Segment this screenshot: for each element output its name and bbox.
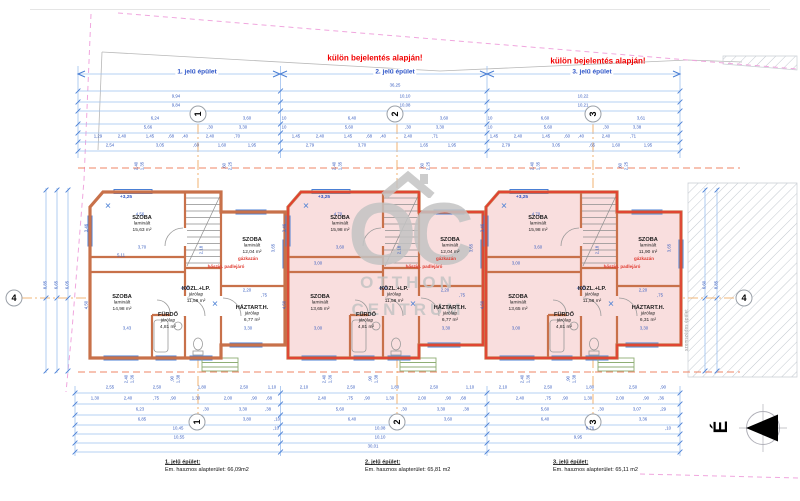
dimension-label: 6,60 — [541, 117, 549, 121]
level-marker-icon: ✕ — [608, 300, 615, 309]
dimension-label: 6,40 — [541, 418, 549, 422]
dimension-label: ,10 — [665, 427, 671, 431]
dimension-label-rotated: 1,35 — [141, 162, 145, 170]
dimension-label: ,30 — [401, 408, 407, 412]
room-name: HÁZTART.H. — [218, 304, 287, 311]
dimension-label-rotated: ,90 — [567, 376, 571, 382]
dimension-label: 1,95 — [448, 144, 456, 148]
dimension-label-rotated: 2,18 — [398, 246, 402, 254]
dimension-label: 2,50 — [153, 386, 161, 390]
dimension-label: ,36 — [658, 397, 664, 401]
dimension-label-rotated: ,60 — [619, 163, 623, 169]
dimension-label: 3,60 — [243, 117, 251, 121]
dimension-label: 3,60 — [336, 246, 344, 250]
dimension-label: 9,95 — [574, 436, 582, 440]
dimension-label: 3,60 — [440, 117, 448, 121]
unit-3-room-szoba: SZOBAlaminált13,65 m² — [484, 293, 553, 313]
footer-title-2: 2. jelű épület: — [365, 459, 450, 466]
dimension-label-rotated: 3,46 — [283, 224, 287, 232]
dimension-label: 10 — [282, 126, 287, 130]
dimension-label: 2,00 — [224, 397, 232, 401]
dimension-label: 3,70 — [138, 246, 146, 250]
permit-note-2: külön bejelentés alapján! — [550, 57, 645, 66]
dimension-label-rotated: 2,40 — [531, 162, 535, 170]
dimension-label: ,68 — [168, 135, 174, 139]
dimension-label: 10,10 — [400, 95, 411, 99]
dimension-label: ,30 — [207, 126, 213, 130]
level-marker-text: +3,25 — [120, 195, 132, 200]
room-name: HÁZTART.H. — [614, 304, 683, 311]
dimension-label: 6,40 — [348, 418, 356, 422]
dimension-label-rotated: 2,25 — [229, 162, 233, 170]
dimension-label-rotated: 2,40 — [521, 375, 525, 383]
dimension-label: 3,61 — [637, 117, 645, 121]
dimension-label: ,30 — [405, 126, 411, 130]
room-area: 11,90 m² — [614, 250, 683, 256]
red-note: hőszig. padlejáró — [406, 265, 443, 270]
dimension-label: 2,50 — [347, 386, 355, 390]
dimension-label: 2,50 — [629, 386, 637, 390]
dimension-label: ,90 — [562, 397, 568, 401]
room-name: SZOBA — [484, 293, 553, 300]
dimension-label-rotated: ,90 — [171, 376, 175, 382]
dimension-label: 5,60 — [345, 126, 353, 130]
footer-title-1: 1. jelű épület: — [165, 459, 249, 466]
dimension-label: 5,11 — [117, 254, 125, 258]
room-area: 4,81 m² — [332, 325, 401, 331]
dimension-label: 3,30 — [640, 327, 648, 331]
room-name: FÜRDŐ — [530, 311, 599, 318]
dimension-label: ,70 — [234, 135, 240, 139]
dimension-label-rotated: 3,46 — [85, 224, 89, 232]
dimension-label-rotated: 8,85 — [715, 281, 719, 289]
dimension-label-rotated: 1,36 — [329, 375, 333, 383]
dimension-label: ,40 — [182, 135, 188, 139]
room-area: 12,04 m² — [218, 250, 287, 256]
dimension-label: ,75 — [153, 397, 159, 401]
room-area: 12,04 m² — [416, 250, 485, 256]
dimension-label: 9,84 — [172, 104, 180, 108]
dimension-label: 1,30 — [386, 397, 394, 401]
level-marker-icon: ✕ — [105, 202, 112, 211]
dimension-label: 3,00 — [314, 327, 322, 331]
dimension-label: 2,50 — [430, 386, 438, 390]
dimension-label: 3,30 — [244, 327, 252, 331]
dimension-label: ,68 — [366, 135, 372, 139]
room-name: HÁZTART.H. — [416, 304, 485, 311]
dimension-label-rotated: 6,65 — [55, 281, 59, 289]
dimension-label: ,30 — [603, 126, 609, 130]
dimension-label: 3,60 — [444, 418, 452, 422]
unit-1-room-h-ztart-h-: HÁZTART.H.járólap6,77 m² — [218, 304, 287, 324]
room-name: SZOBA — [306, 214, 375, 221]
dimension-label: 3,05 — [156, 144, 164, 148]
dimension-label: ,68 — [460, 397, 466, 401]
unit-2-room-f-rd-: FÜRDŐjárólap4,81 m² — [332, 311, 401, 331]
dimension-label-rotated: ,90 — [369, 376, 373, 382]
room-area: 15,63 m² — [108, 228, 177, 234]
unit-3-room-f-rd-: FÜRDŐjárólap4,81 m² — [530, 311, 599, 331]
unit-2-room-k-zl-lp-: KÖZL.+LP.járólap11,58 m² — [360, 285, 429, 305]
room-area: 15,98 m² — [504, 228, 573, 234]
dimension-label: 36,25 — [390, 84, 401, 88]
dimension-label-rotated: 2,18 — [200, 246, 204, 254]
dimension-label-rotated: 6,60 — [703, 281, 707, 289]
red-note: hőszig. padlejáró — [208, 265, 245, 270]
dimension-label-rotated: 2,40 — [125, 375, 129, 383]
dimension-label: 3,60 — [534, 246, 542, 250]
dimension-label: 2,79 — [306, 144, 314, 148]
dimension-label: 2,20 — [639, 289, 647, 293]
dimension-label: 2,40 — [514, 135, 522, 139]
dimension-label: 10,10 — [375, 436, 386, 440]
dimension-label: 2,00 — [418, 397, 426, 401]
dimension-label: 2,10 — [499, 386, 507, 390]
dimension-label: ,90 — [364, 397, 370, 401]
dimension-label: ,10 — [274, 418, 280, 422]
dimension-label: ,75 — [347, 397, 353, 401]
dimension-label: 10,08 — [400, 104, 411, 108]
dimension-label: 2,55 — [106, 386, 114, 390]
dimension-label: 2,40 — [124, 397, 132, 401]
unit-3-room-szoba: SZOBAlaminált11,90 m² — [614, 236, 683, 256]
dimension-label: 6,24 — [151, 117, 159, 121]
dimension-label-rotated: 1,38 — [177, 375, 181, 383]
dimension-label: 1,45 — [292, 135, 300, 139]
dimension-label: 2,40 — [602, 135, 610, 139]
level-marker-icon: ✕ — [212, 300, 219, 309]
dimension-label: 1,10 — [268, 386, 276, 390]
dimension-label: 1,80 — [198, 386, 206, 390]
permit-note-1: külön bejelentés alapján! — [327, 54, 422, 63]
dimension-label-rotated: 1,36 — [527, 375, 531, 383]
unit-3-room-szoba: SZOBAlaminált15,98 m² — [504, 214, 573, 234]
dimension-label: 3,30 — [442, 327, 450, 331]
dimension-label-rotated: 1,36 — [131, 375, 135, 383]
dimension-label: 2,50 — [240, 386, 248, 390]
neighbour-note: szomszédos épület — [685, 309, 689, 351]
room-name: FÜRDŐ — [332, 311, 401, 318]
unit-2-room-h-ztart-h-: HÁZTART.H.járólap6,77 m² — [416, 304, 485, 324]
dimension-label: 3,00 — [512, 262, 520, 266]
room-name: SZOBA — [286, 293, 355, 300]
room-name: SZOBA — [614, 236, 683, 243]
dimension-label: ,40 — [578, 135, 584, 139]
dimension-label: 2,20 — [441, 289, 449, 293]
dimension-label: 10,55 — [174, 436, 185, 440]
dimension-label: 2,40 — [206, 135, 214, 139]
dimension-label: 3,30 — [239, 408, 247, 412]
dimension-label: 10,22 — [578, 95, 589, 99]
dimension-label: 2,10 — [300, 386, 308, 390]
dimension-label: 2,40 — [118, 135, 126, 139]
dimension-label: 2,79 — [502, 144, 510, 148]
dimension-label: ,90 — [251, 397, 257, 401]
dimension-label: ,90 — [445, 397, 451, 401]
dimension-label: 10 — [488, 117, 493, 121]
dimension-label: 1,45 — [542, 135, 550, 139]
unit-3-room-h-ztart-h-: HÁZTART.H.járólap6,31 m² — [614, 304, 683, 324]
dimension-label-rotated: 6,05 — [66, 281, 70, 289]
red-note: gázkazán — [634, 257, 654, 262]
dimension-label: 1,60 — [612, 144, 620, 148]
dimension-label: 3,80 — [243, 418, 251, 422]
footer-area-2: Em. hasznos alapterület: 65,81 m2 — [365, 466, 450, 473]
room-area: 6,77 m² — [416, 318, 485, 324]
dimension-label: 3,38 — [633, 126, 641, 130]
level-marker-icon: ✕ — [303, 202, 310, 211]
dimension-label: 1,45 — [146, 135, 154, 139]
dimension-label: 10,21 — [578, 104, 589, 108]
dimension-label: ,29 — [660, 408, 666, 412]
dimension-label-rotated: 2,40 — [333, 162, 337, 170]
dimension-label: 1,95 — [248, 144, 256, 148]
unit-1-room-szoba: SZOBAlaminált15,63 m² — [108, 214, 177, 234]
floor-plan-sheet: 12344123 OC OTTHON CENTRUM külön bejelen… — [0, 0, 800, 501]
dimension-label: 6,40 — [348, 117, 356, 121]
room-name: SZOBA — [416, 236, 485, 243]
unit-2-room-szoba: SZOBAlaminált12,04 m² — [416, 236, 485, 256]
dimension-label-rotated: 2,40 — [323, 375, 327, 383]
dimension-label: 3,36 — [639, 418, 647, 422]
dimension-label: 10 — [488, 126, 493, 130]
dimension-label: 6,23 — [136, 408, 144, 412]
room-area: 4,81 m² — [134, 325, 203, 331]
dimension-label-rotated: ,60 — [223, 163, 227, 169]
dimension-label: 2,20 — [243, 289, 251, 293]
dimension-label: ,60 — [564, 135, 570, 139]
dimension-label: 10 — [282, 117, 287, 121]
building-label-2: 2. jelű épület — [373, 69, 416, 76]
level-marker-icon: ✕ — [410, 300, 417, 309]
room-name: KÖZL.+LP. — [162, 285, 231, 292]
dimension-label: 2,00 — [616, 397, 624, 401]
dimension-label: 1,45 — [490, 135, 498, 139]
dimension-label: 30,01 — [368, 445, 379, 449]
dimension-label: 2,50 — [544, 386, 552, 390]
red-note: hőszig. padlejáró — [604, 265, 641, 270]
unit-1-room-f-rd-: FÜRDŐjárólap4,81 m² — [134, 311, 203, 331]
level-marker-text: +3,25 — [516, 195, 528, 200]
dimension-label: ,38 — [463, 408, 469, 412]
building-label-1: 1. jelű épület — [175, 69, 218, 76]
dimension-label: 5,60 — [544, 126, 552, 130]
footer-title-3: 3. jelű épület: — [553, 459, 638, 466]
dimension-label: ,75 — [261, 294, 267, 298]
dimension-label: 2,54 — [106, 144, 114, 148]
room-name: KÖZL.+LP. — [360, 285, 429, 292]
unit-1-room-k-zl-lp-: KÖZL.+LP.járólap11,58 m² — [162, 285, 231, 305]
dimension-label: ,75 — [657, 294, 663, 298]
dimension-label: ,68 — [266, 397, 272, 401]
building-label-3: 3. jelű épület — [570, 69, 613, 76]
room-name: FÜRDŐ — [134, 311, 203, 318]
dimension-label: 3,30 — [437, 408, 445, 412]
dimension-label: 3,30 — [239, 126, 247, 130]
dimension-label: 9,76 — [586, 427, 594, 431]
dimension-label: 1,30 — [91, 397, 99, 401]
annotation-layer: külön bejelentés alapján! külön bejelent… — [0, 0, 800, 501]
dimension-label: ,30 — [203, 408, 209, 412]
dimension-label: 3,70 — [358, 144, 366, 148]
dimension-label-rotated: 1,35 — [339, 162, 343, 170]
dimension-label: ,75 — [545, 397, 551, 401]
room-name: SZOBA — [108, 214, 177, 221]
room-name: SZOBA — [218, 236, 287, 243]
dimension-label: ,90 — [660, 386, 666, 390]
dimension-label: 3,00 — [314, 262, 322, 266]
dimension-label: 1,45 — [344, 135, 352, 139]
dimension-label: 3,00 — [512, 327, 520, 331]
dimension-label: ,90 — [643, 397, 649, 401]
dimension-label: ,75 — [459, 294, 465, 298]
dimension-label: 1,10 — [466, 386, 474, 390]
dimension-label: ,71 — [432, 135, 438, 139]
red-note: gázkazán — [436, 257, 456, 262]
dimension-label: 5,60 — [541, 408, 549, 412]
unit-1-room-szoba: SZOBAlaminált12,04 m² — [218, 236, 287, 256]
unit-1-room-szoba: SZOBAlaminált14,98 m² — [88, 293, 157, 313]
footer-area-1: Em. hasznos alapterület: 66,09m2 — [165, 466, 249, 473]
north-label: É — [711, 421, 733, 434]
dimension-label: 1,80 — [586, 386, 594, 390]
dimension-label: 1,65 — [420, 144, 428, 148]
room-name: KÖZL.+LP. — [558, 285, 627, 292]
unit-2-room-szoba: SZOBAlaminált15,98 m² — [306, 214, 375, 234]
dimension-label-rotated: 2,40 — [135, 162, 139, 170]
dimension-label: 9,94 — [172, 95, 180, 99]
dimension-label: ,30 — [598, 408, 604, 412]
level-marker-text: +3,25 — [318, 195, 330, 200]
red-note: gázkazán — [238, 257, 258, 262]
dimension-label: 1,60 — [218, 144, 226, 148]
dimension-label-rotated: 1,35 — [537, 162, 541, 170]
dimension-label: ,90 — [170, 397, 176, 401]
dimension-label: 3,43 — [123, 327, 131, 331]
room-area: 15,98 m² — [306, 228, 375, 234]
room-area: 6,31 m² — [614, 318, 683, 324]
dimension-label-rotated: 1,38 — [375, 375, 379, 383]
dimension-label-rotated: 2,25 — [427, 162, 431, 170]
room-name: SZOBA — [88, 293, 157, 300]
dimension-label-rotated: 2,25 — [625, 162, 629, 170]
dimension-label: 3,07 — [633, 408, 641, 412]
dimension-label-rotated: 1,38 — [573, 375, 577, 383]
dimension-label: 1,80 — [391, 386, 399, 390]
dimension-label: ,71 — [630, 135, 636, 139]
dimension-label: 1,29 — [94, 135, 102, 139]
dimension-label: 10,08 — [375, 427, 386, 431]
dimension-label: 1,30 — [584, 397, 592, 401]
dimension-label: ,10 — [273, 427, 279, 431]
level-marker-icon: ✕ — [501, 202, 508, 211]
dimension-label: 2,40 — [404, 135, 412, 139]
dimension-label-rotated: 2,18 — [596, 246, 600, 254]
dimension-label: ,60 — [193, 144, 199, 148]
dimension-label: ,40 — [380, 135, 386, 139]
dimension-label: 6,85 — [138, 418, 146, 422]
dimension-label-rotated: 3,46 — [481, 224, 485, 232]
unit-3-room-k-zl-lp-: KÖZL.+LP.járólap11,58 m² — [558, 285, 627, 305]
unit-2-room-szoba: SZOBAlaminált13,65 m² — [286, 293, 355, 313]
dimension-label: 2,40 — [316, 135, 324, 139]
dimension-label: 3,05 — [552, 144, 560, 148]
dimension-label: 5,60 — [336, 408, 344, 412]
dimension-label: 1,95 — [644, 144, 652, 148]
dimension-label: ,38 — [265, 408, 271, 412]
room-name: SZOBA — [504, 214, 573, 221]
room-area: 6,77 m² — [218, 318, 287, 324]
dimension-label-rotated: 8,85 — [44, 281, 48, 289]
dimension-label: 10,45 — [173, 427, 184, 431]
dimension-label: 2,40 — [318, 397, 326, 401]
room-area: 4,81 m² — [530, 325, 599, 331]
dimension-label: ,65 — [589, 144, 595, 148]
dimension-label: 5,66 — [144, 126, 152, 130]
dimension-label: 1,30 — [192, 397, 200, 401]
footer-building-3: 3. jelű épület: Em. hasznos alapterület:… — [553, 459, 638, 474]
footer-building-2: 2. jelű épület: Em. hasznos alapterület:… — [365, 459, 450, 474]
dimension-label: 3,30 — [436, 126, 444, 130]
footer-building-1: 1. jelű épület: Em. hasznos alapterület:… — [165, 459, 249, 474]
dimension-label-rotated: ,60 — [421, 163, 425, 169]
dimension-label: 2,40 — [516, 397, 524, 401]
footer-area-3: Em. hasznos alapterület: 65,11 m2 — [553, 466, 638, 473]
